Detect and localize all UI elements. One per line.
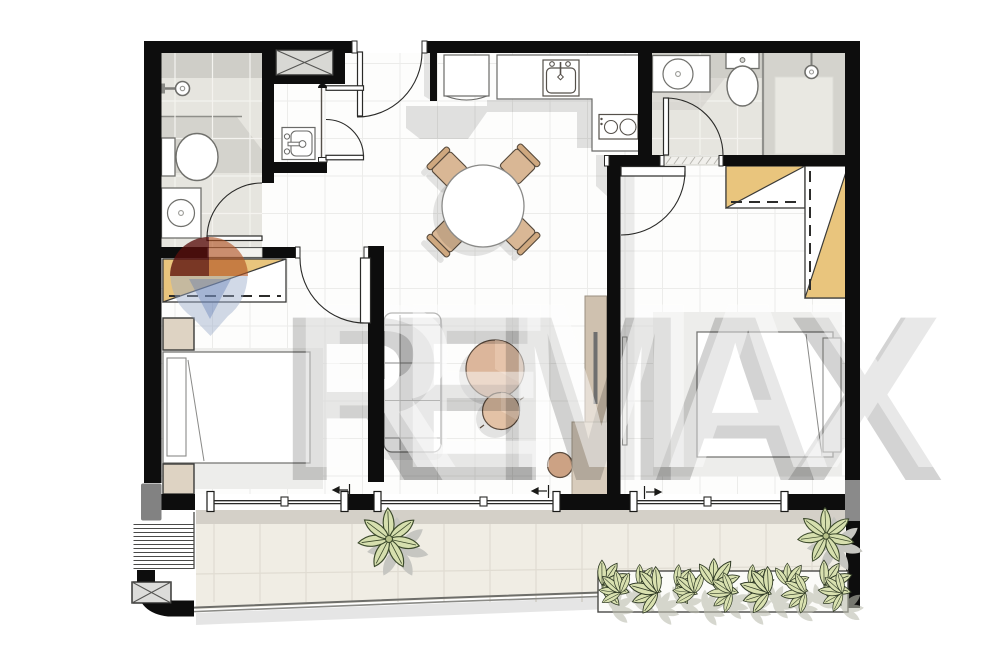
svg-text:X: X	[799, 254, 956, 518]
